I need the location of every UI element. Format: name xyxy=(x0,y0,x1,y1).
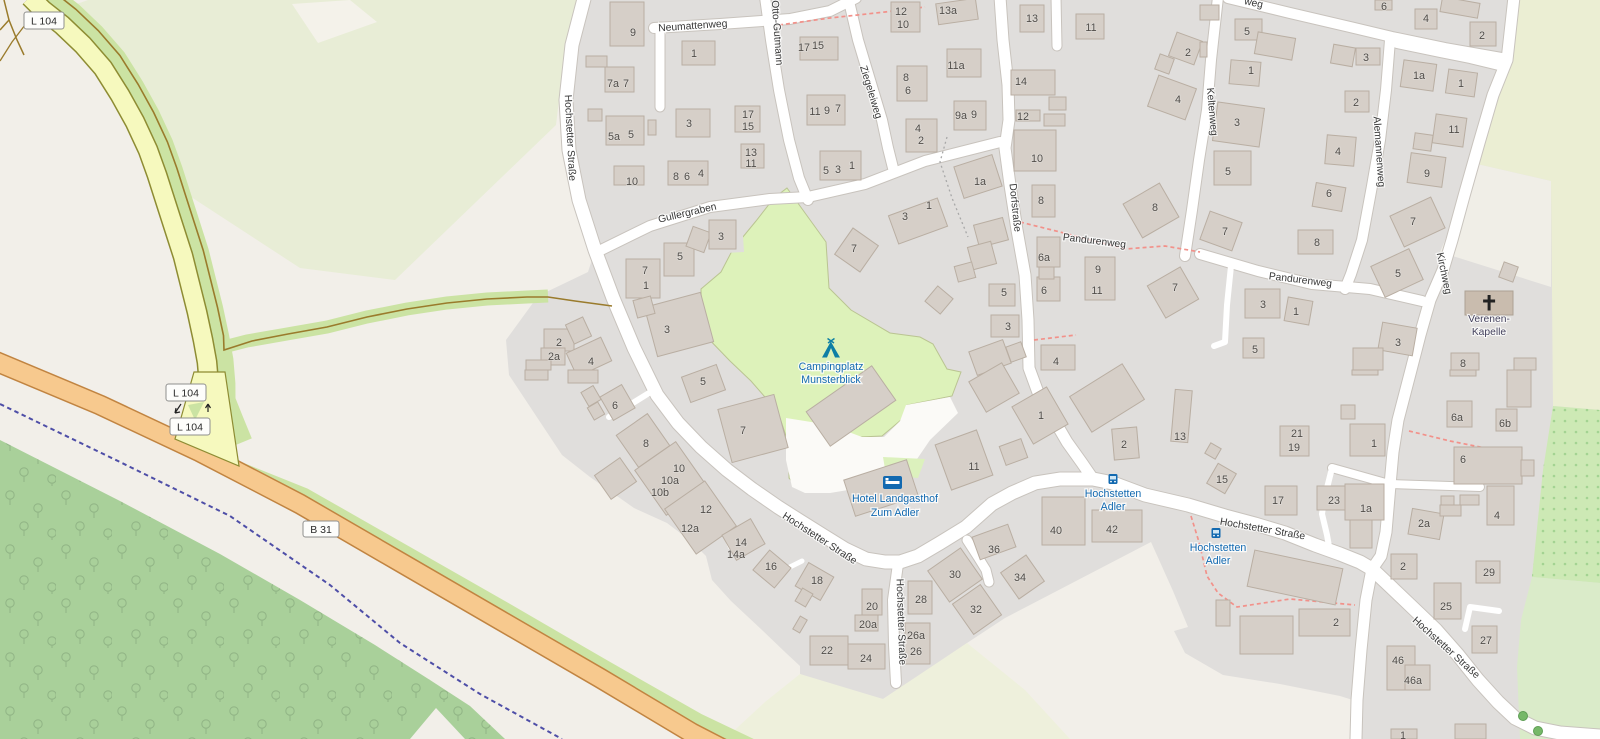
svg-text:7: 7 xyxy=(1222,226,1228,238)
svg-text:2: 2 xyxy=(1185,47,1191,59)
svg-text:30: 30 xyxy=(949,569,961,581)
svg-text:10b: 10b xyxy=(651,487,669,499)
svg-text:6a: 6a xyxy=(1038,252,1050,264)
svg-text:6: 6 xyxy=(1326,188,1332,200)
svg-text:14a: 14a xyxy=(727,549,745,561)
svg-text:46: 46 xyxy=(1392,655,1404,667)
svg-text:6a: 6a xyxy=(1451,412,1463,424)
svg-text:4: 4 xyxy=(1175,94,1181,106)
svg-text:15: 15 xyxy=(742,121,754,133)
svg-text:27: 27 xyxy=(1480,635,1492,647)
svg-text:3: 3 xyxy=(1363,52,1369,64)
svg-text:10: 10 xyxy=(626,176,638,188)
svg-text:6: 6 xyxy=(684,171,690,183)
svg-text:26a: 26a xyxy=(907,630,925,642)
svg-text:3: 3 xyxy=(835,164,841,176)
svg-text:5: 5 xyxy=(628,129,634,141)
svg-text:3: 3 xyxy=(1234,117,1240,129)
svg-text:7: 7 xyxy=(835,103,841,115)
svg-text:14: 14 xyxy=(1015,76,1027,88)
svg-text:1: 1 xyxy=(1458,78,1464,90)
svg-text:10: 10 xyxy=(673,463,685,475)
svg-text:17: 17 xyxy=(742,109,754,121)
svg-text:8: 8 xyxy=(1152,202,1158,214)
svg-text:2: 2 xyxy=(1353,97,1359,109)
svg-text:2: 2 xyxy=(1121,439,1127,451)
svg-text:4: 4 xyxy=(1494,510,1500,522)
svg-text:12: 12 xyxy=(895,6,907,18)
svg-text:1: 1 xyxy=(926,200,932,212)
svg-text:29: 29 xyxy=(1483,567,1495,579)
svg-text:5: 5 xyxy=(823,165,829,177)
svg-text:4: 4 xyxy=(1335,146,1341,158)
svg-text:22: 22 xyxy=(821,645,833,657)
svg-text:9: 9 xyxy=(630,27,636,39)
svg-text:7: 7 xyxy=(1410,216,1416,228)
svg-text:11: 11 xyxy=(968,461,979,473)
svg-text:1: 1 xyxy=(849,160,855,172)
svg-text:2a: 2a xyxy=(548,351,560,363)
svg-text:9: 9 xyxy=(824,105,830,117)
svg-text:9: 9 xyxy=(1095,264,1101,276)
svg-text:5: 5 xyxy=(1252,344,1258,356)
svg-text:3: 3 xyxy=(718,231,724,243)
svg-text:7: 7 xyxy=(623,78,629,90)
svg-text:7a: 7a xyxy=(607,78,619,90)
svg-text:6: 6 xyxy=(1381,1,1387,13)
svg-text:3: 3 xyxy=(664,324,670,336)
svg-text:1: 1 xyxy=(691,48,697,60)
svg-text:2: 2 xyxy=(1400,561,1406,573)
svg-text:17: 17 xyxy=(798,42,810,54)
svg-text:1: 1 xyxy=(1371,438,1377,450)
svg-text:B 31: B 31 xyxy=(310,524,332,536)
svg-text:5a: 5a xyxy=(608,131,620,143)
svg-text:7: 7 xyxy=(851,243,857,255)
svg-text:11: 11 xyxy=(1448,124,1459,136)
svg-text:Zum Adler: Zum Adler xyxy=(871,507,920,519)
svg-text:9: 9 xyxy=(971,109,977,121)
svg-text:1a: 1a xyxy=(1360,503,1372,515)
svg-text:7: 7 xyxy=(1172,282,1178,294)
svg-text:15: 15 xyxy=(812,40,824,52)
svg-text:1a: 1a xyxy=(974,176,986,188)
svg-text:L 104: L 104 xyxy=(173,388,199,400)
svg-text:1: 1 xyxy=(1248,65,1254,77)
svg-text:12a: 12a xyxy=(681,523,699,535)
svg-text:11: 11 xyxy=(1091,285,1102,297)
svg-text:1: 1 xyxy=(643,280,649,292)
svg-text:4: 4 xyxy=(588,356,594,368)
svg-text:6: 6 xyxy=(1041,285,1047,297)
svg-text:8: 8 xyxy=(1460,358,1466,370)
svg-text:2: 2 xyxy=(1479,30,1485,42)
svg-text:Verenen-: Verenen- xyxy=(1468,314,1510,325)
svg-text:1: 1 xyxy=(1038,410,1044,422)
svg-text:6: 6 xyxy=(612,400,618,412)
svg-text:9: 9 xyxy=(1424,168,1430,180)
svg-text:4: 4 xyxy=(1423,13,1429,25)
svg-text:Adler: Adler xyxy=(1101,501,1126,513)
svg-text:Hotel Landgasthof: Hotel Landgasthof xyxy=(852,493,938,505)
svg-text:18: 18 xyxy=(811,575,823,587)
svg-text:10: 10 xyxy=(1031,153,1043,165)
svg-text:12: 12 xyxy=(1017,111,1029,123)
svg-text:5: 5 xyxy=(1395,268,1401,280)
svg-text:2: 2 xyxy=(556,337,562,349)
svg-text:2: 2 xyxy=(918,135,924,147)
svg-text:5: 5 xyxy=(700,376,706,388)
svg-text:7: 7 xyxy=(740,425,746,437)
svg-text:9a: 9a xyxy=(955,110,967,122)
svg-text:1: 1 xyxy=(1293,306,1299,318)
svg-text:3: 3 xyxy=(1395,337,1401,349)
svg-text:5: 5 xyxy=(1225,166,1231,178)
svg-text:14: 14 xyxy=(735,537,747,549)
svg-text:16: 16 xyxy=(765,561,777,573)
svg-text:8: 8 xyxy=(903,72,909,84)
svg-text:34: 34 xyxy=(1014,572,1026,584)
svg-text:32: 32 xyxy=(970,604,982,616)
svg-text:L 104: L 104 xyxy=(31,16,57,28)
svg-text:10: 10 xyxy=(897,19,909,31)
svg-text:3: 3 xyxy=(1005,321,1011,333)
svg-text:23: 23 xyxy=(1328,495,1340,507)
svg-text:12: 12 xyxy=(700,504,712,516)
svg-text:6b: 6b xyxy=(1499,418,1511,430)
svg-text:L 104: L 104 xyxy=(177,422,203,434)
svg-text:40: 40 xyxy=(1050,525,1062,537)
svg-text:10a: 10a xyxy=(661,475,679,487)
svg-text:17: 17 xyxy=(1272,495,1284,507)
svg-text:20a: 20a xyxy=(859,619,877,631)
svg-text:Hochstetten: Hochstetten xyxy=(1085,488,1142,500)
svg-text:Adler: Adler xyxy=(1206,555,1231,567)
svg-text:25: 25 xyxy=(1440,601,1452,613)
svg-text:46a: 46a xyxy=(1404,675,1422,687)
svg-text:26: 26 xyxy=(910,646,922,658)
svg-text:36: 36 xyxy=(988,544,1000,556)
svg-text:11: 11 xyxy=(745,158,756,170)
svg-text:13: 13 xyxy=(1026,13,1038,25)
svg-text:Munsterblick: Munsterblick xyxy=(801,374,861,386)
svg-text:24: 24 xyxy=(860,653,872,665)
svg-text:8: 8 xyxy=(1038,195,1044,207)
svg-text:28: 28 xyxy=(915,594,927,606)
svg-text:3: 3 xyxy=(1260,299,1266,311)
svg-text:5: 5 xyxy=(677,251,683,263)
svg-text:1: 1 xyxy=(1400,730,1406,739)
svg-text:6: 6 xyxy=(1460,454,1466,466)
svg-text:11: 11 xyxy=(1085,22,1096,34)
svg-text:13: 13 xyxy=(1174,431,1186,443)
svg-text:3: 3 xyxy=(686,118,692,130)
svg-text:42: 42 xyxy=(1106,524,1118,536)
svg-text:13a: 13a xyxy=(939,5,957,17)
svg-text:8: 8 xyxy=(1314,237,1320,249)
svg-text:11a: 11a xyxy=(947,60,964,72)
svg-text:5: 5 xyxy=(1001,287,1007,299)
svg-text:8: 8 xyxy=(673,171,679,183)
svg-text:8: 8 xyxy=(643,438,649,450)
svg-text:7: 7 xyxy=(642,265,648,277)
svg-text:21: 21 xyxy=(1291,428,1303,440)
svg-text:2: 2 xyxy=(1333,617,1339,629)
svg-text:4: 4 xyxy=(915,123,921,135)
svg-text:1a: 1a xyxy=(1413,70,1425,82)
svg-text:6: 6 xyxy=(905,85,911,97)
svg-text:3: 3 xyxy=(902,211,908,223)
svg-text:Kapelle: Kapelle xyxy=(1472,327,1507,338)
svg-text:19: 19 xyxy=(1288,442,1300,454)
svg-text:2a: 2a xyxy=(1418,518,1430,530)
svg-text:20: 20 xyxy=(866,601,878,613)
svg-text:4: 4 xyxy=(1053,356,1059,368)
svg-text:5: 5 xyxy=(1244,26,1250,38)
svg-text:4: 4 xyxy=(698,168,704,180)
svg-text:Hochstetten: Hochstetten xyxy=(1190,542,1247,554)
svg-text:Campingplatz: Campingplatz xyxy=(799,361,864,373)
svg-text:11: 11 xyxy=(809,106,820,118)
svg-text:15: 15 xyxy=(1216,474,1228,486)
